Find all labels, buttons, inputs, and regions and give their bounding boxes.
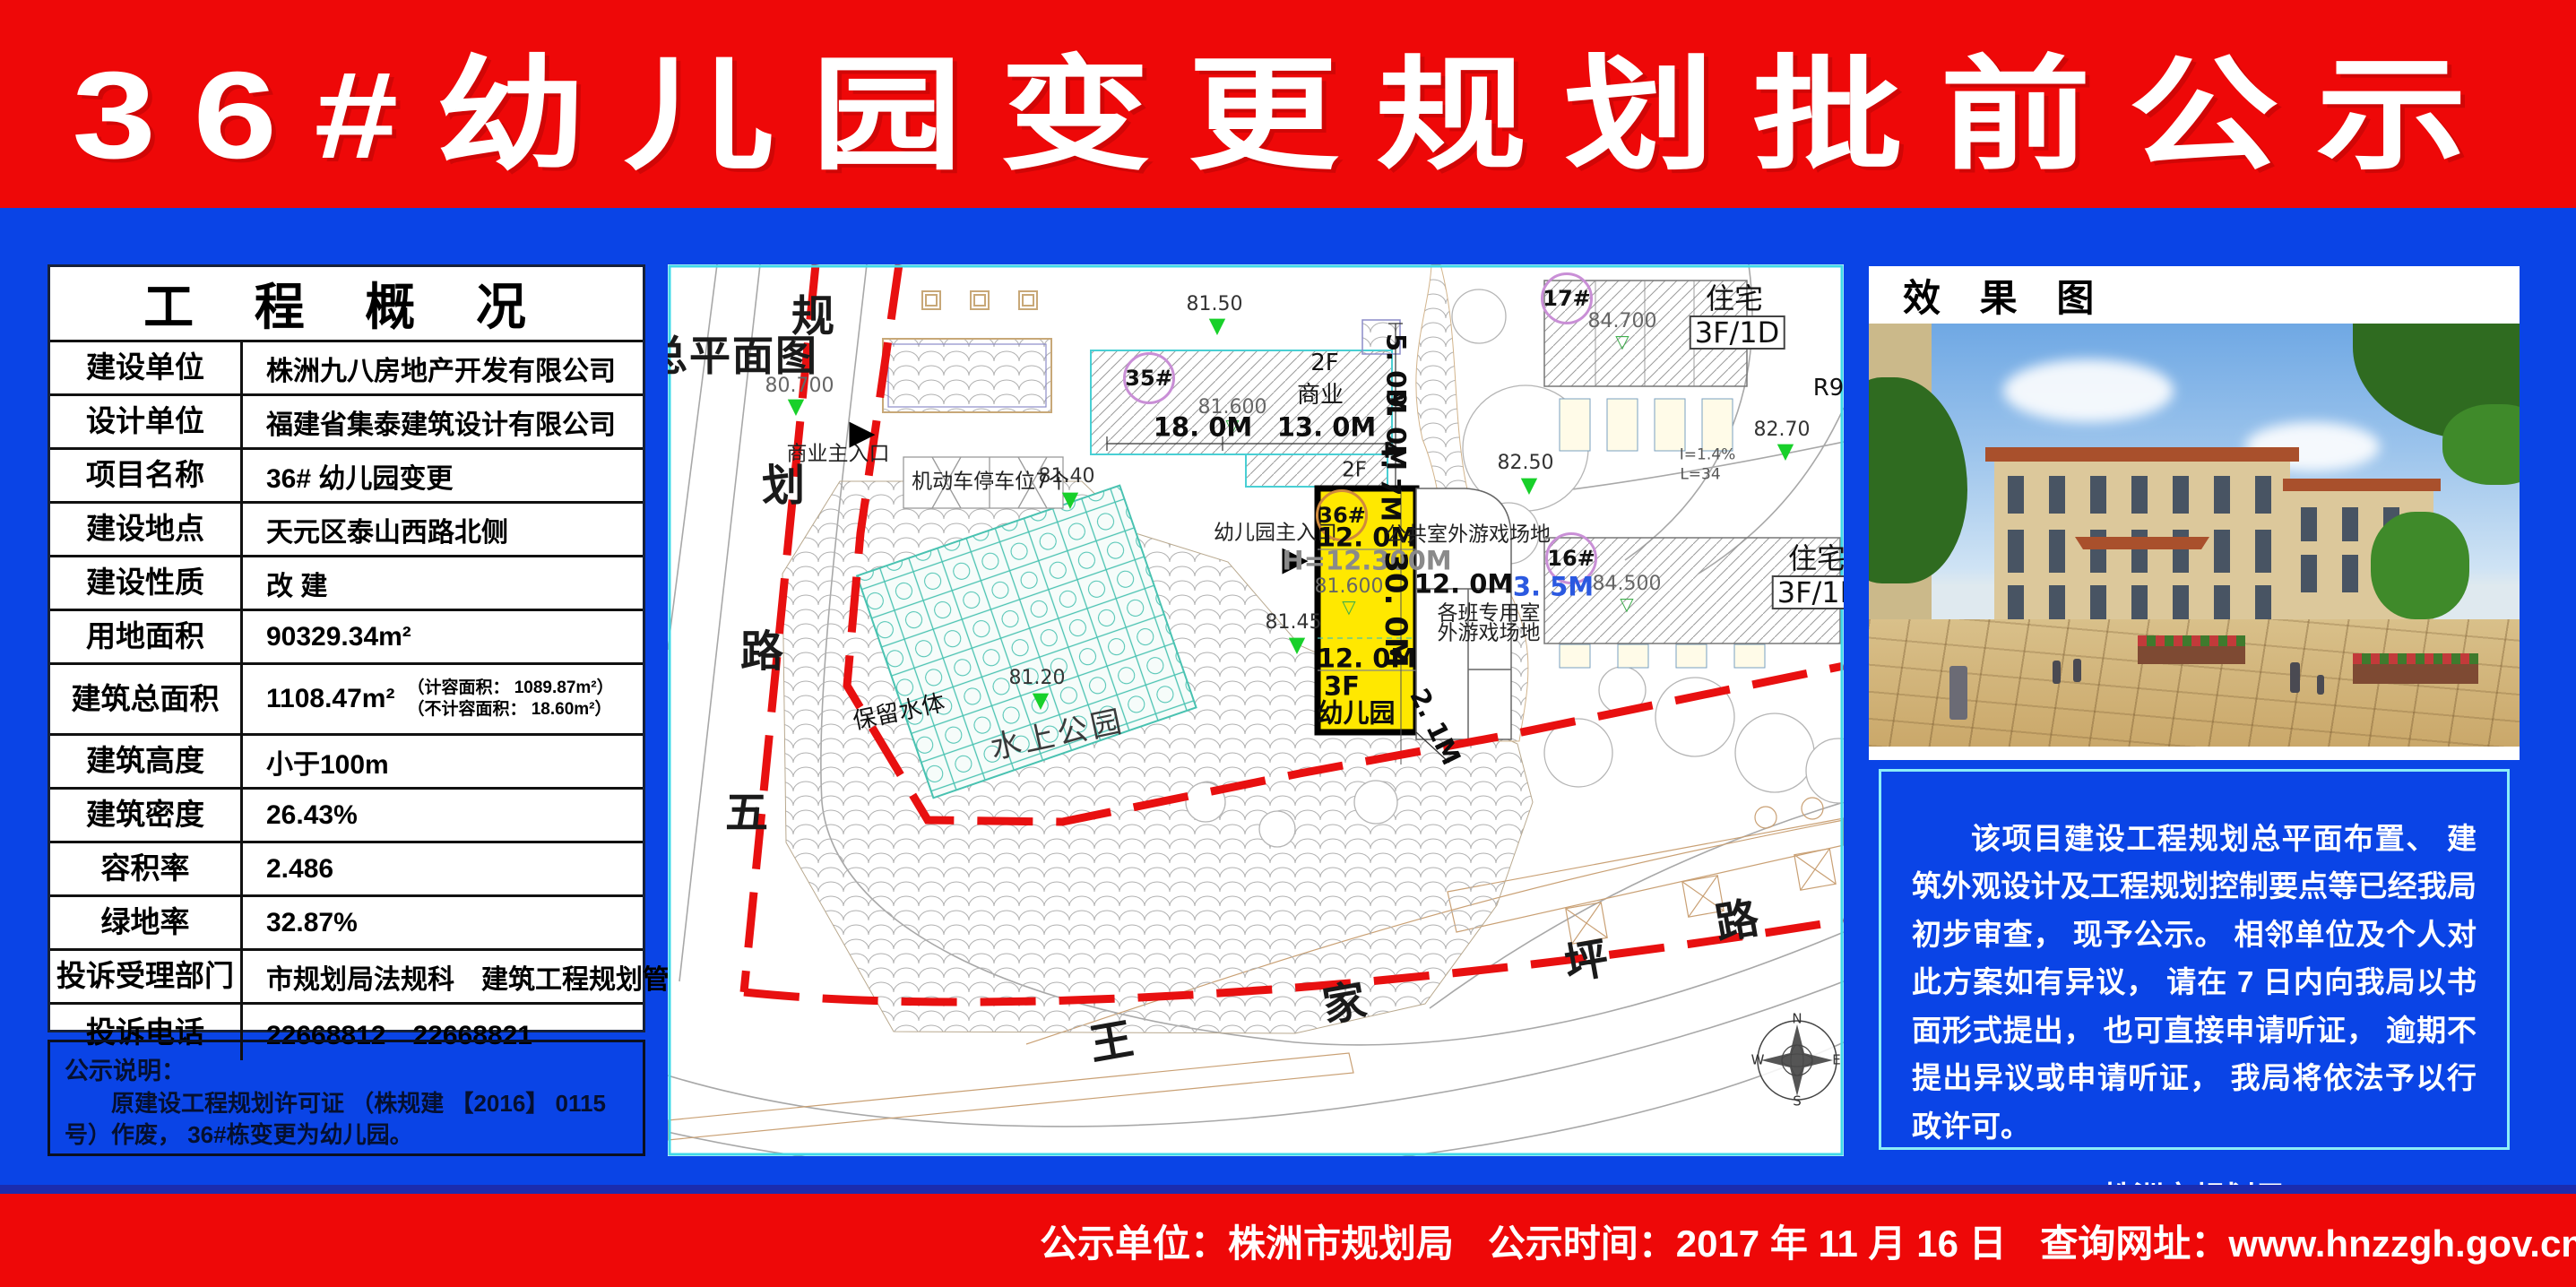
row-label: 建设性质: [50, 557, 243, 609]
photo-divider: [1869, 747, 2520, 760]
row-value: 株洲九八房地产开发有限公司: [243, 342, 643, 393]
road-name-char: 家: [1319, 979, 1370, 1029]
photo-pedestrian: [2317, 675, 2324, 695]
notice-box: 公示说明： 原建设工程规划许可证 （株规建 【2016】 0115号）作废， 3…: [48, 1040, 645, 1156]
floors-label: 2F: [1310, 351, 1339, 375]
dimension: 3. 5M: [1513, 574, 1594, 600]
compass-letter: N: [1792, 1013, 1802, 1026]
photo-tree: [1869, 377, 1967, 583]
table-row: 建设性质改 建: [50, 555, 643, 609]
notice-body: 原建设工程规划许可证 （株规建 【2016】 0115号）作废， 36#栋变更为…: [65, 1088, 628, 1151]
floors-label: 3F/1D: [1774, 577, 1844, 608]
photo-roof: [1985, 447, 2299, 462]
use-label: 住宅: [1706, 284, 1763, 313]
road-name-char: 坪: [1561, 937, 1612, 987]
row-label: 设计单位: [50, 396, 243, 447]
photo-cloud: [2003, 359, 2174, 422]
footer-unit-label: 公示单位：: [1040, 1222, 1228, 1265]
road-radius-label: R9: [1813, 376, 1844, 400]
table-row: 建筑密度26.43%: [50, 787, 643, 841]
footer-url: www.hnzzgh.gov.cn: [2228, 1222, 2576, 1265]
photo-pedestrian: [2073, 659, 2081, 682]
footer: 公示单位：株洲市规划局 公示时间：2017 年 11 月 16 日 查询网址：w…: [0, 1194, 2576, 1287]
compass-letter: E: [1832, 1054, 1840, 1067]
photo-pedestrian: [1949, 666, 1967, 720]
table-row: 容积率2.486: [50, 841, 643, 894]
elevation-value: 81.45: [1266, 613, 1322, 633]
elevation-marker: ▼: [1289, 634, 1305, 655]
compass-letter: W: [1751, 1054, 1765, 1067]
table-row: 设计单位福建省集泰建筑设计有限公司: [50, 393, 643, 447]
photo-flowerbed: [2138, 635, 2245, 646]
road-name-char: 王: [1086, 1017, 1137, 1067]
road-name-char: 划: [762, 464, 805, 507]
elevation-marker: ▽: [1620, 595, 1633, 613]
elevation-marker: ▼: [1777, 440, 1794, 462]
table-row: 投诉受理部门市规划局法规科 建筑工程规划管理科: [50, 948, 643, 1002]
table-rows: 建设单位株洲九八房地产开发有限公司设计单位福建省集泰建筑设计有限公司项目名称36…: [50, 340, 643, 1060]
photo-tree: [2371, 512, 2469, 619]
row-value: 90329.34m²: [243, 611, 643, 662]
render-panel-text-box: 该项目建设工程规划总平面布置、 建筑外观设计及工程规划控制要点等已经我局初步审查…: [1879, 769, 2510, 1150]
elevation-value: 81.20: [1009, 669, 1066, 688]
elevation-value: 81.50: [1187, 295, 1243, 315]
building-number-badge: 35#: [1123, 352, 1175, 404]
footer-divider: [0, 1185, 2576, 1194]
row-value: 26.43%: [243, 790, 643, 841]
table-row: 建筑总面积1108.47m²（计容面积： 1089.87m²）（不计容面积： 1…: [50, 662, 643, 733]
announcement-paragraph: 该项目建设工程规划总平面布置、 建筑外观设计及工程规划控制要点等已经我局初步审查…: [1912, 815, 2477, 1150]
compass-letter: S: [1793, 1095, 1802, 1109]
elevation-value: 82.50: [1498, 453, 1554, 473]
row-label: 投诉受理部门: [50, 951, 243, 1002]
banner: 36#幼儿园变更规划批前公示: [0, 0, 2576, 208]
row-value: 1108.47m²（计容面积： 1089.87m²）（不计容面积： 18.60m…: [243, 665, 643, 733]
small-structures: [922, 291, 1037, 309]
play-area-label: 公共室外游戏场地: [1386, 525, 1551, 546]
elevation-marker: ▽: [1342, 598, 1355, 616]
row-value: 36# 幼儿园变更: [243, 450, 643, 501]
dimension: 12. 0M: [1318, 646, 1417, 672]
elevation-marker: ▼: [788, 395, 804, 417]
row-label: 建设地点: [50, 504, 243, 555]
row-value: 2.486: [243, 843, 643, 894]
footer-time: 2017 年 11 月 16 日: [1676, 1222, 2007, 1265]
row-label: 项目名称: [50, 450, 243, 501]
dimension: 4. 7M: [1378, 441, 1404, 522]
rendering-image: [1869, 324, 2520, 747]
floors-label: 2F: [1342, 461, 1367, 481]
elevation-marker: ▼: [1033, 689, 1049, 711]
photo-flowerbed: [2353, 653, 2478, 664]
row-label: 建设单位: [50, 342, 243, 393]
render-panel-title: 效 果 图: [1869, 268, 2108, 323]
compass-icon: [1758, 1021, 1837, 1100]
row-label: 容积率: [50, 843, 243, 894]
elevation-marker: ▼: [1521, 474, 1537, 496]
slope-label: L=34: [1680, 468, 1720, 483]
photo-planter: [2138, 644, 2245, 664]
elevation-value: 84.700: [1588, 312, 1657, 332]
photo-tree: [2442, 404, 2520, 485]
road-name-char: 路: [1712, 896, 1762, 946]
table-row: 项目名称36# 幼儿园变更: [50, 447, 643, 501]
use-label: 住宅: [1788, 544, 1844, 573]
road-name-char: 规: [791, 295, 834, 338]
photo-windows: [2008, 530, 2277, 573]
banner-title: 36#幼儿园变更规划批前公示: [72, 14, 2504, 194]
pond: [883, 339, 1051, 412]
footer-unit: 株洲市规划局: [1228, 1222, 1454, 1265]
row-label: 用地面积: [50, 611, 243, 662]
use-label: 商业: [1297, 384, 1344, 407]
notice-title: 公示说明：: [65, 1051, 628, 1086]
render-panel-header: 效 果 图: [1869, 266, 2520, 324]
row-value: 天元区泰山西路北侧: [243, 504, 643, 555]
row-value: 市规划局法规科 建筑工程规划管理科: [243, 951, 723, 1002]
photo-windows: [2008, 476, 2277, 514]
dimension: 18. 0M: [1154, 415, 1253, 441]
photo-pedestrian: [2290, 662, 2300, 693]
table-title: 工 程 概 况: [50, 267, 643, 340]
building-number-badge: 17#: [1541, 272, 1593, 324]
elevation-value: 82.70: [1754, 420, 1811, 440]
elevation-marker: ▼: [1209, 315, 1225, 336]
road-name-char: 五: [725, 791, 768, 834]
table-row: 用地面积90329.34m²: [50, 609, 643, 662]
slope-label: I=1.4%: [1680, 448, 1735, 463]
row-value: 32.87%: [243, 897, 643, 948]
row-label: 建筑总面积: [50, 665, 243, 733]
row-value: 改 建: [243, 557, 643, 609]
site-plan-panel: 总平面图规划路五王家坪路80.700▼81.50▼81.40▼81.600▽84…: [668, 264, 1844, 1156]
row-value: 福建省集泰建筑设计有限公司: [243, 396, 643, 447]
table-row: 建设单位株洲九八房地产开发有限公司: [50, 340, 643, 393]
dimension: 13. 0M: [1277, 415, 1377, 441]
photo-canopy: [2075, 537, 2209, 549]
row-label: 建筑密度: [50, 790, 243, 841]
entrance-arrow-icon: ▶: [849, 415, 875, 449]
photo-roof: [2283, 479, 2441, 491]
elevation-value: 84.500: [1593, 574, 1662, 594]
table-row: 建设地点天元区泰山西路北侧: [50, 501, 643, 555]
project-overview-table: 工 程 概 况 建设单位株洲九八房地产开发有限公司设计单位福建省集泰建筑设计有限…: [48, 264, 645, 1032]
dimension: 12. 0M: [1414, 572, 1514, 598]
play-area-label: 外游戏场地: [1438, 624, 1541, 644]
row-label: 绿地率: [50, 897, 243, 948]
announcement-board: 36#幼儿园变更规划批前公示 工 程 概 况 建设单位株洲九八房地产开发有限公司…: [0, 0, 2576, 1287]
floors-label: 3F: [1324, 674, 1360, 700]
footer-url-label: 查询网址：: [2040, 1222, 2228, 1265]
footer-text: 公示单位：株洲市规划局 公示时间：2017 年 11 月 16 日 查询网址：w…: [0, 1214, 2576, 1268]
table-row: 建筑高度小于100m: [50, 733, 643, 787]
photo-pedestrian: [2053, 661, 2061, 684]
parking-label: 机动车停车位7个: [912, 472, 1069, 493]
road-name-char: 路: [740, 630, 783, 673]
row-value-notes: （计容面积： 1089.87m²）（不计容面积： 18.60m²）: [407, 678, 613, 721]
kindergarten-label: 幼儿园: [1317, 701, 1395, 727]
row-label: 建筑高度: [50, 736, 243, 787]
footer-time-label: 公示时间：: [1488, 1222, 1676, 1265]
floors-label: 3F/1D: [1691, 317, 1784, 348]
elevation-value: 81.600: [1315, 577, 1384, 597]
table-row: 绿地率32.87%: [50, 894, 643, 948]
elevation-marker: ▽: [1615, 333, 1629, 350]
row-value: 小于100m: [243, 736, 643, 787]
photo-planter: [2353, 662, 2478, 684]
